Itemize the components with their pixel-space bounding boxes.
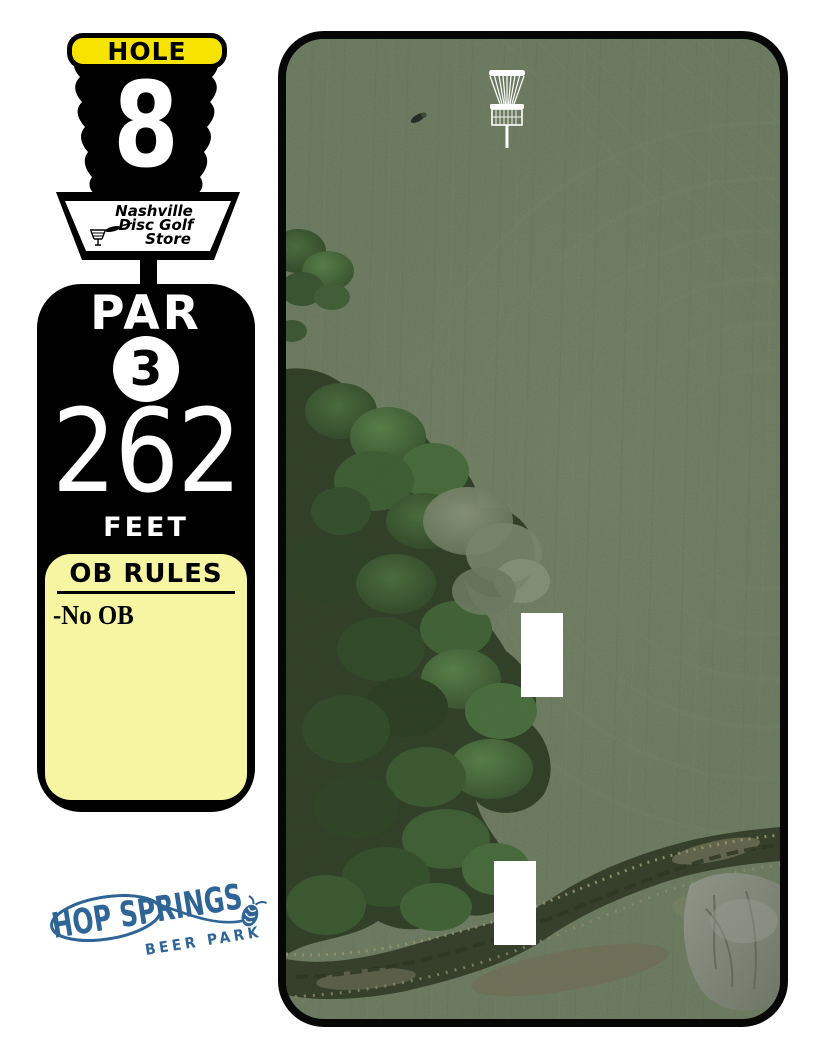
hop-springs-logo: HOP SPRINGS BEER PARK — [28, 860, 268, 960]
ob-rule-text: -No OB — [53, 600, 231, 631]
hole-label: HOLE — [107, 37, 186, 66]
ob-rules-divider — [57, 591, 235, 594]
aerial-map-canvas — [286, 39, 780, 1019]
hole-sign-page: HOLE 8 Nashville Disc Golf Store PAR 3 2… — [0, 0, 816, 1056]
distance-value: 262 — [50, 396, 242, 508]
hole-label-pill: HOLE — [67, 33, 227, 69]
ob-rules-panel: OB RULES -No OB — [45, 554, 247, 800]
tee-pad-lower — [494, 861, 536, 945]
sponsor-plate: Nashville Disc Golf Store — [52, 190, 244, 262]
distance-unit: FEET — [37, 512, 255, 543]
par-label: PAR — [37, 286, 255, 341]
aerial-map — [278, 31, 788, 1027]
tee-pad-upper — [521, 613, 563, 697]
sponsor-line-3: Store — [145, 230, 191, 248]
hole-number: 8 — [85, 58, 207, 193]
hole-info-panel: PAR 3 262 FEET OB RULES -No OB — [37, 284, 255, 812]
ob-rules-title: OB RULES — [45, 559, 247, 589]
